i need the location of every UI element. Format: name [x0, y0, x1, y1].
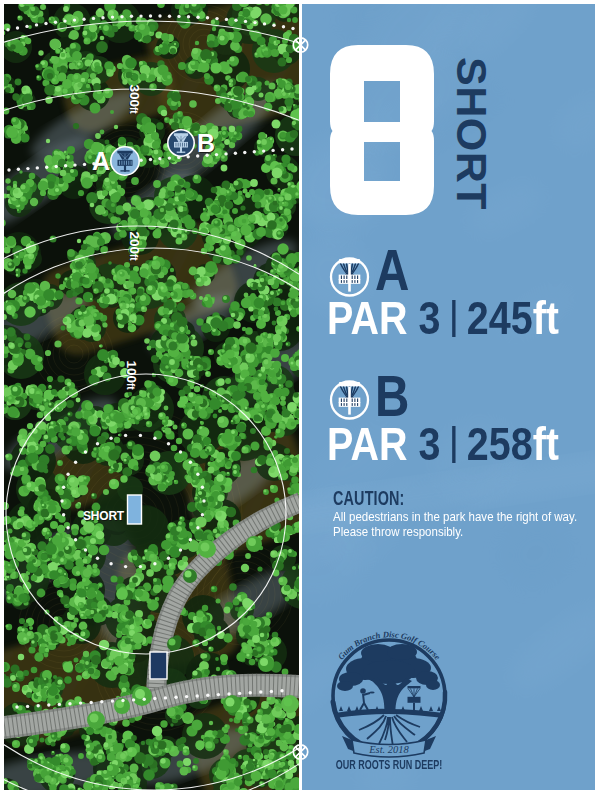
svg-text:A: A: [92, 147, 110, 175]
svg-text:B: B: [197, 129, 215, 157]
svg-text:200ft: 200ft: [127, 231, 142, 261]
svg-text:300ft: 300ft: [127, 84, 142, 114]
svg-text:SHORT: SHORT: [83, 509, 125, 523]
svg-text:100ft: 100ft: [124, 360, 139, 390]
svg-text:Est. 2018: Est. 2018: [368, 744, 409, 755]
